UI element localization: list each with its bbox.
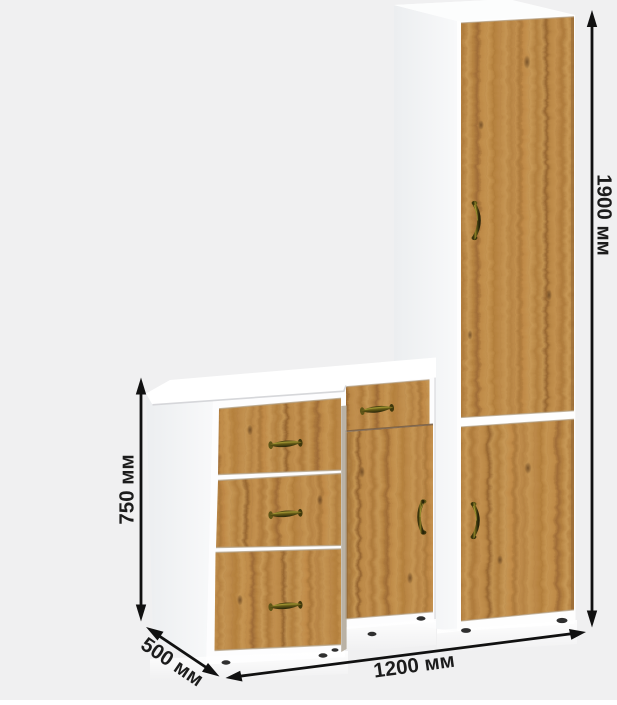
svg-text:1900 мм: 1900 мм [592, 174, 615, 256]
svg-text:750 мм: 750 мм [116, 454, 139, 524]
